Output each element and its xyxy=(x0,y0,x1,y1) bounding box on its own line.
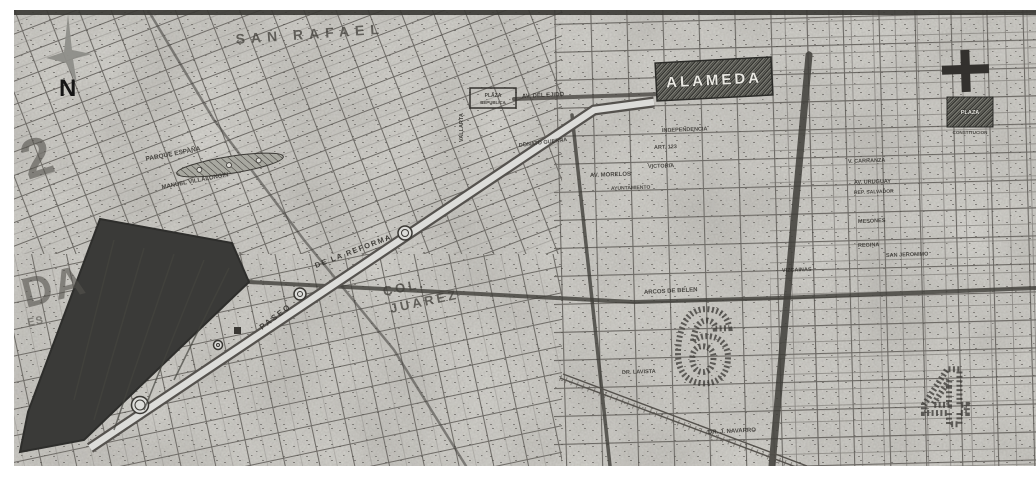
plaza-constitucion-label-2: CONSTITUCION xyxy=(953,130,989,135)
scanned-city-map-page: ALAMEDA PLAZA CONSTITUCION PLAZA REPUBLI… xyxy=(0,0,1036,489)
map-top-border xyxy=(14,10,1036,15)
glorieta-circle xyxy=(294,288,306,300)
city-map: ALAMEDA PLAZA CONSTITUCION PLAZA REPUBLI… xyxy=(14,10,1036,466)
glorieta-circle xyxy=(214,341,223,350)
map-canvas: ALAMEDA PLAZA CONSTITUCION PLAZA REPUBLI… xyxy=(14,10,1036,466)
street-label: DR. LAVISTA xyxy=(622,369,656,376)
street-label: REGINA xyxy=(858,242,880,249)
glorieta-circle xyxy=(398,226,412,240)
compass-north-label: N xyxy=(59,75,76,102)
plaza-constitucion-label-1: PLAZA xyxy=(961,110,979,116)
street-label: VICTORIA xyxy=(648,163,674,170)
district-numeral-6: 6 xyxy=(669,285,739,407)
street-label: VIZCAINAS xyxy=(782,267,812,274)
reforma-monument xyxy=(234,327,241,334)
plaza-constitucion: PLAZA CONSTITUCION xyxy=(947,97,993,135)
street-label: ART. 123 xyxy=(654,144,677,151)
plaza-republica-label-2: REPUBLICA xyxy=(480,100,506,105)
alameda-park: ALAMEDA xyxy=(655,57,773,101)
street-label: MESONES xyxy=(858,218,886,225)
district-numeral-4: 4 xyxy=(923,352,968,441)
plaza-republica-label-1: PLAZA xyxy=(485,93,502,99)
street-label: VALLARTA xyxy=(459,113,465,142)
